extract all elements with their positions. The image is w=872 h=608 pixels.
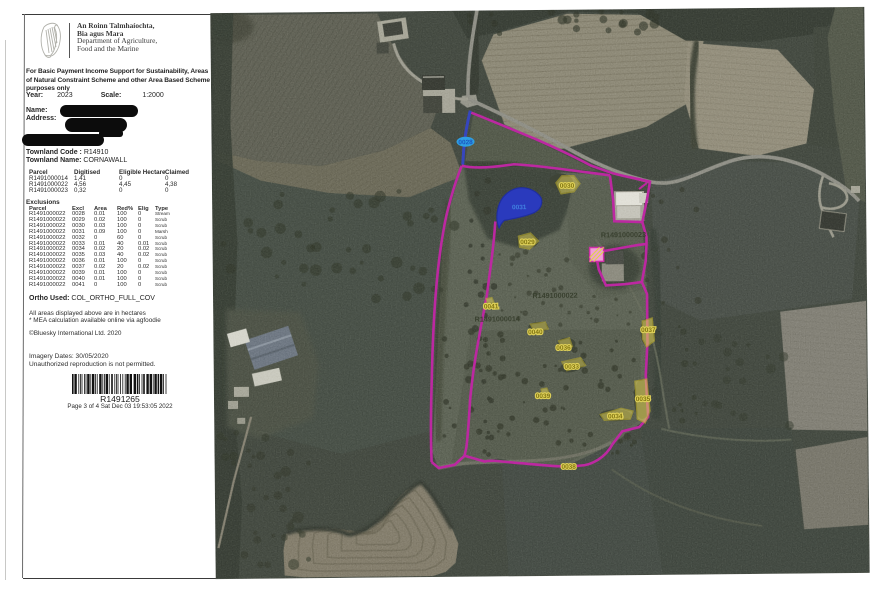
svg-text:0028: 0028 xyxy=(458,139,473,146)
svg-text:0033: 0033 xyxy=(564,364,579,371)
svg-text:0029: 0029 xyxy=(520,239,535,246)
svg-text:R1491000014: R1491000014 xyxy=(475,314,520,323)
svg-text:0034: 0034 xyxy=(608,413,623,420)
svg-text:0030: 0030 xyxy=(560,183,575,190)
svg-text:0040: 0040 xyxy=(528,329,543,336)
svg-text:0039: 0039 xyxy=(536,393,551,400)
svg-text:0038: 0038 xyxy=(561,464,576,471)
svg-text:0036: 0036 xyxy=(556,345,571,352)
svg-text:0035: 0035 xyxy=(636,396,651,403)
svg-text:R1491000022: R1491000022 xyxy=(532,291,577,300)
svg-text:0031: 0031 xyxy=(512,204,527,211)
svg-text:0037: 0037 xyxy=(641,327,656,334)
svg-text:0041: 0041 xyxy=(484,303,499,310)
svg-text:R1491000023: R1491000023 xyxy=(601,230,646,239)
